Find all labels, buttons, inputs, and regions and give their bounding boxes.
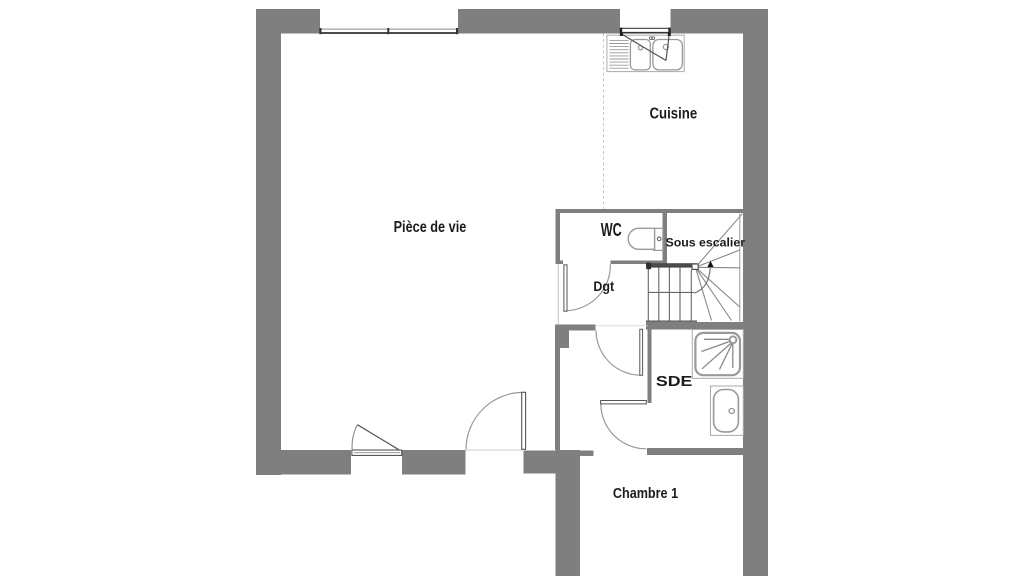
svg-text:Sous escalier: Sous escalier: [666, 235, 746, 249]
svg-text:SDE: SDE: [656, 373, 693, 390]
svg-text:WC: WC: [601, 220, 622, 240]
svg-text:Cuisine: Cuisine: [650, 106, 698, 123]
svg-text:Chambre 1: Chambre 1: [613, 486, 678, 502]
svg-text:Dgt: Dgt: [593, 278, 614, 294]
svg-text:Pièce de vie: Pièce de vie: [394, 219, 467, 236]
